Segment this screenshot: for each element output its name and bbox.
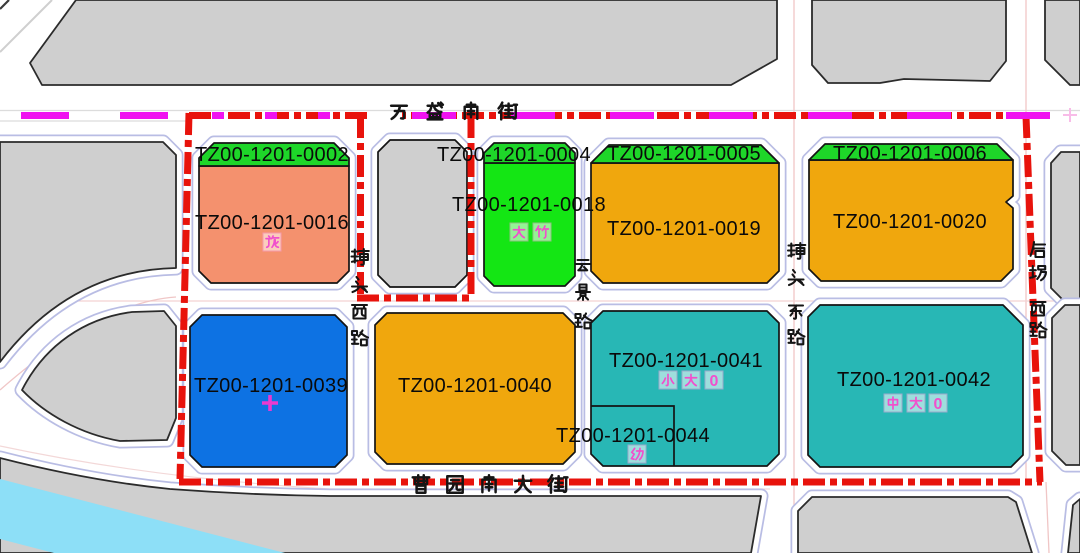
svg-text:TZ00-1201-0040: TZ00-1201-0040	[398, 375, 552, 397]
svg-text:TZ00-1201-0044: TZ00-1201-0044	[556, 425, 710, 447]
svg-text:TZ00-1201-0041: TZ00-1201-0041	[609, 350, 763, 372]
svg-text:TZ00-1201-0004: TZ00-1201-0004	[437, 144, 591, 166]
svg-text:TZ00-1201-0020: TZ00-1201-0020	[833, 211, 987, 233]
svg-text:0: 0	[710, 373, 719, 390]
svg-text:TZ00-1201-0016: TZ00-1201-0016	[195, 212, 349, 234]
svg-text:TZ00-1201-0019: TZ00-1201-0019	[607, 218, 761, 240]
svg-text:TZ00-1201-0002: TZ00-1201-0002	[195, 144, 349, 166]
svg-text:TZ00-1201-0006: TZ00-1201-0006	[833, 143, 987, 165]
svg-text:TZ00-1201-0042: TZ00-1201-0042	[837, 369, 991, 391]
svg-text:TZ00-1201-0018: TZ00-1201-0018	[452, 194, 606, 216]
svg-text:TZ00-1201-0039: TZ00-1201-0039	[194, 375, 348, 397]
svg-text:0: 0	[934, 396, 943, 413]
svg-text:TZ00-1201-0005: TZ00-1201-0005	[607, 143, 761, 165]
